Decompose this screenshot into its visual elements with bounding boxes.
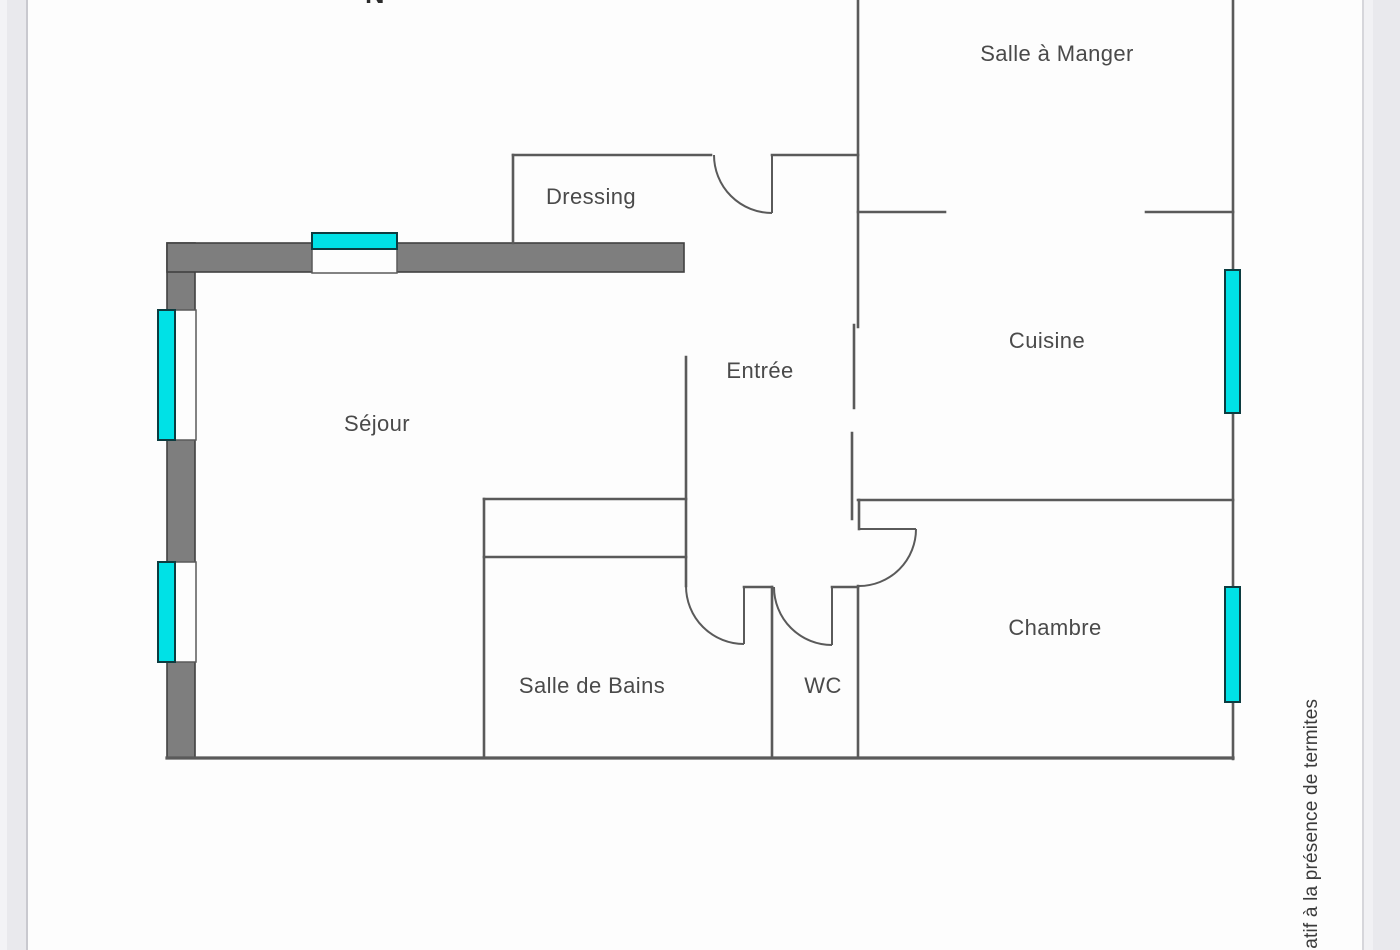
side-note-termites: ent relatif à la présence de termites (1301, 671, 1323, 950)
north-indicator: N (365, 0, 385, 10)
floor-plan-page: N Salle à Manger Dressing Cuisine Entrée… (0, 0, 1400, 950)
salle-de-bains-door (686, 586, 744, 644)
chambre-door-arc (859, 529, 916, 586)
floor-plan-drawing (0, 0, 1400, 950)
wc-door-arc (774, 587, 832, 645)
doors (686, 155, 916, 645)
room-label-cuisine: Cuisine (1009, 328, 1085, 354)
wall-window-openings (166, 242, 397, 662)
room-label-dressing: Dressing (546, 184, 636, 210)
dressing-door-arc (714, 155, 772, 213)
wc-door (774, 587, 832, 645)
north-wall (167, 243, 684, 272)
room-label-sejour: Séjour (344, 411, 410, 437)
room-label-salle-de-bains: Salle de Bains (519, 673, 665, 699)
room-label-wc: WC (804, 673, 841, 699)
room-label-chambre: Chambre (1008, 615, 1101, 641)
east-window-2 (1225, 587, 1240, 702)
east-window-1 (1225, 270, 1240, 413)
thin-walls (167, 0, 1233, 759)
west-window-2 (158, 562, 175, 662)
north-window (312, 233, 397, 249)
west-window-1 (158, 310, 175, 440)
room-label-entree: Entrée (726, 358, 793, 384)
chambre-door (859, 529, 916, 586)
dressing-door (714, 155, 772, 213)
room-label-salle-a-manger: Salle à Manger (980, 41, 1134, 67)
sdb-door-arc (686, 586, 744, 644)
